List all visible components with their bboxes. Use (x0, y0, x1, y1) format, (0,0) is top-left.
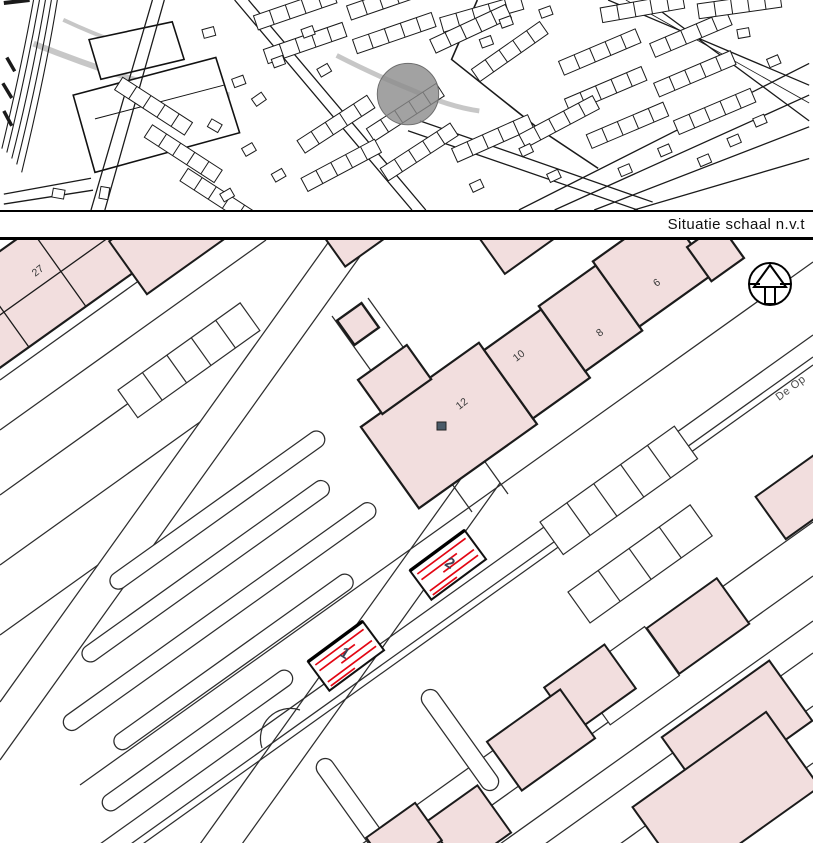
north-arrow-icon (749, 263, 791, 305)
situatie-drawing: Situatie schaal n.v.t (0, 0, 813, 843)
site-plan: 27 12 10 8 6 1 2 De Op (0, 240, 813, 843)
overview-map (0, 0, 813, 210)
situatie-caption: Situatie schaal n.v.t (668, 216, 805, 233)
overview-map-section (0, 0, 813, 212)
location-marker-icon (377, 63, 438, 124)
utility-marker-icon (437, 422, 446, 430)
site-plan-section: 27 12 10 8 6 1 2 De Op (0, 237, 813, 843)
caption-row: Situatie schaal n.v.t (0, 212, 813, 237)
